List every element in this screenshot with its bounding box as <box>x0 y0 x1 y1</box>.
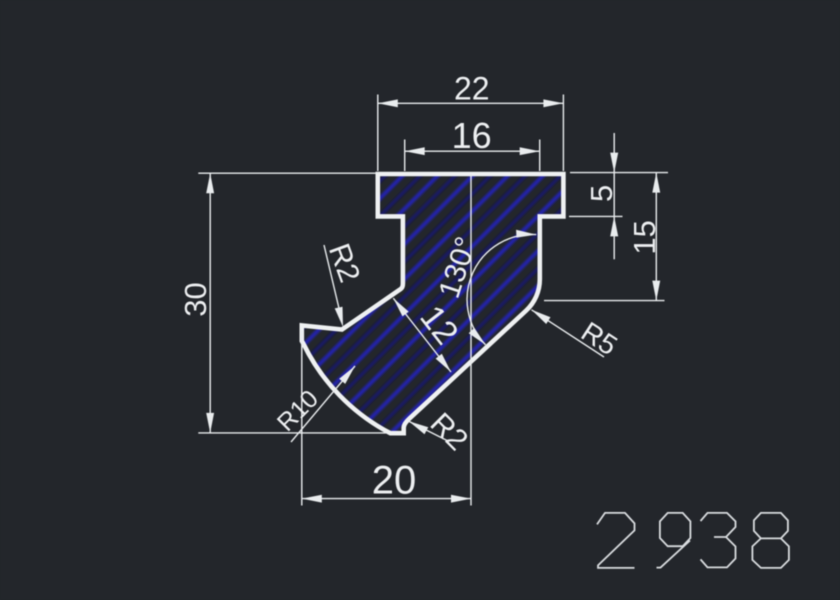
svg-text:5: 5 <box>584 185 619 202</box>
svg-text:16: 16 <box>452 115 492 156</box>
svg-text:30: 30 <box>178 282 213 316</box>
svg-text:20: 20 <box>372 459 417 503</box>
svg-text:22: 22 <box>454 70 490 106</box>
svg-text:15: 15 <box>627 220 662 254</box>
